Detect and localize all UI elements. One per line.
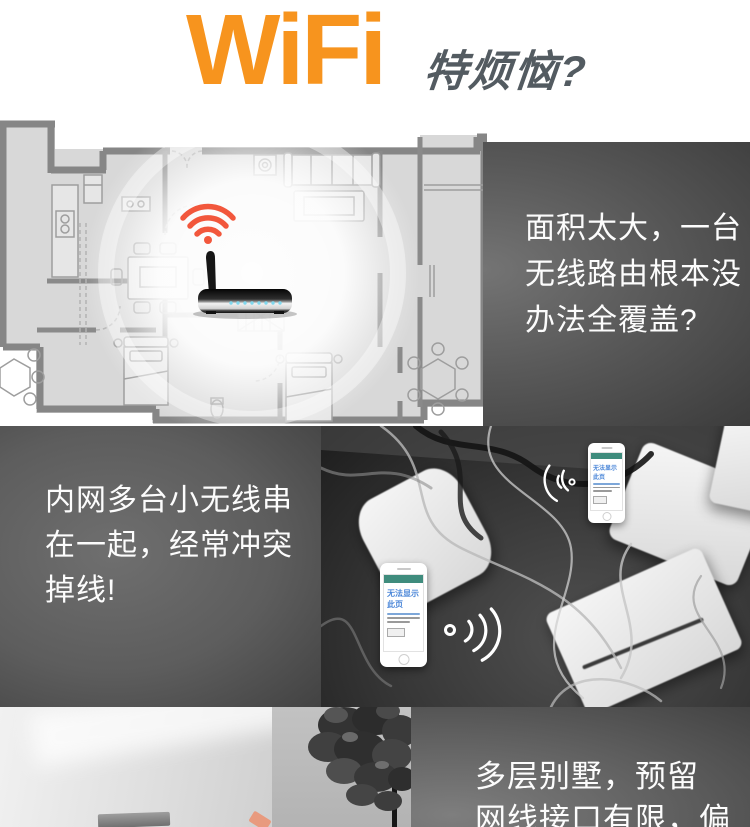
floorplan-illustration	[0, 115, 487, 426]
refresh-button-placeholder	[593, 496, 607, 504]
pain-point-line: 无线路由根本没	[525, 252, 742, 298]
phone-screen: 无法显示此页	[383, 574, 424, 652]
smartphone: 无法显示此页	[380, 563, 427, 667]
phone-speaker-icon	[397, 568, 411, 570]
refresh-button-placeholder	[387, 628, 405, 637]
phone-home-button	[602, 512, 611, 521]
error-text-line	[593, 483, 620, 485]
pain-point-line: 面积太大，一台	[525, 206, 742, 252]
error-text-line	[593, 490, 612, 492]
phone-screen: 无法显示此页	[590, 452, 623, 511]
villa-text-panel: 多层别墅，预留 网线接口有限，偏	[411, 707, 750, 827]
pain-point-line: 掉线!	[45, 568, 293, 613]
section-coverage: 面积太大，一台 无线路由根本没 办法全覆盖?	[0, 115, 750, 426]
section-villa: 多层别墅，预留 网线接口有限，偏	[0, 707, 750, 827]
brand-title: WiFi	[186, 0, 384, 106]
smartphone: 无法显示此页	[588, 443, 625, 523]
error-page-title: 无法显示此页	[593, 463, 620, 481]
error-text-line	[387, 617, 420, 619]
pain-point-line: 内网多台小无线串	[45, 478, 293, 523]
wifi-waves-icon	[437, 600, 507, 664]
villa-photo	[0, 707, 411, 827]
pain-point-line: 在一起，经常冲突	[45, 523, 293, 568]
pain-point-line: 多层别墅，预留	[475, 755, 731, 798]
error-text-line	[387, 621, 410, 623]
coverage-text-panel: 面积太大，一台 无线路由根本没 办法全覆盖?	[483, 142, 750, 426]
pain-point-line: 网线接口有限，偏	[475, 798, 731, 827]
browser-title-bar	[591, 453, 622, 459]
conflict-text-panel: 内网多台小无线串 在一起，经常冲突 掉线!	[0, 426, 321, 707]
error-text-line	[387, 613, 420, 615]
routers-photo: 无法显示此页 无法显示此页	[321, 426, 750, 707]
browser-title-bar	[384, 575, 423, 583]
phone-home-button	[398, 654, 409, 665]
section-conflict: 内网多台小无线串 在一起，经常冲突 掉线!	[0, 426, 750, 707]
header: WiFi 特烦恼?	[0, 0, 750, 115]
pain-point-line: 办法全覆盖?	[525, 298, 742, 344]
brand-tagline: 特烦恼?	[421, 46, 590, 98]
promo-page: WiFi 特烦恼?	[0, 0, 750, 827]
coverage-glow	[84, 115, 420, 426]
wifi-waves-icon	[539, 460, 579, 504]
tree-illustration	[284, 707, 411, 827]
gray-device-box	[98, 812, 170, 827]
error-text-line	[593, 487, 620, 489]
phone-speaker-icon	[601, 447, 612, 449]
error-page-title: 无法显示此页	[387, 588, 420, 610]
orange-object	[248, 811, 271, 827]
